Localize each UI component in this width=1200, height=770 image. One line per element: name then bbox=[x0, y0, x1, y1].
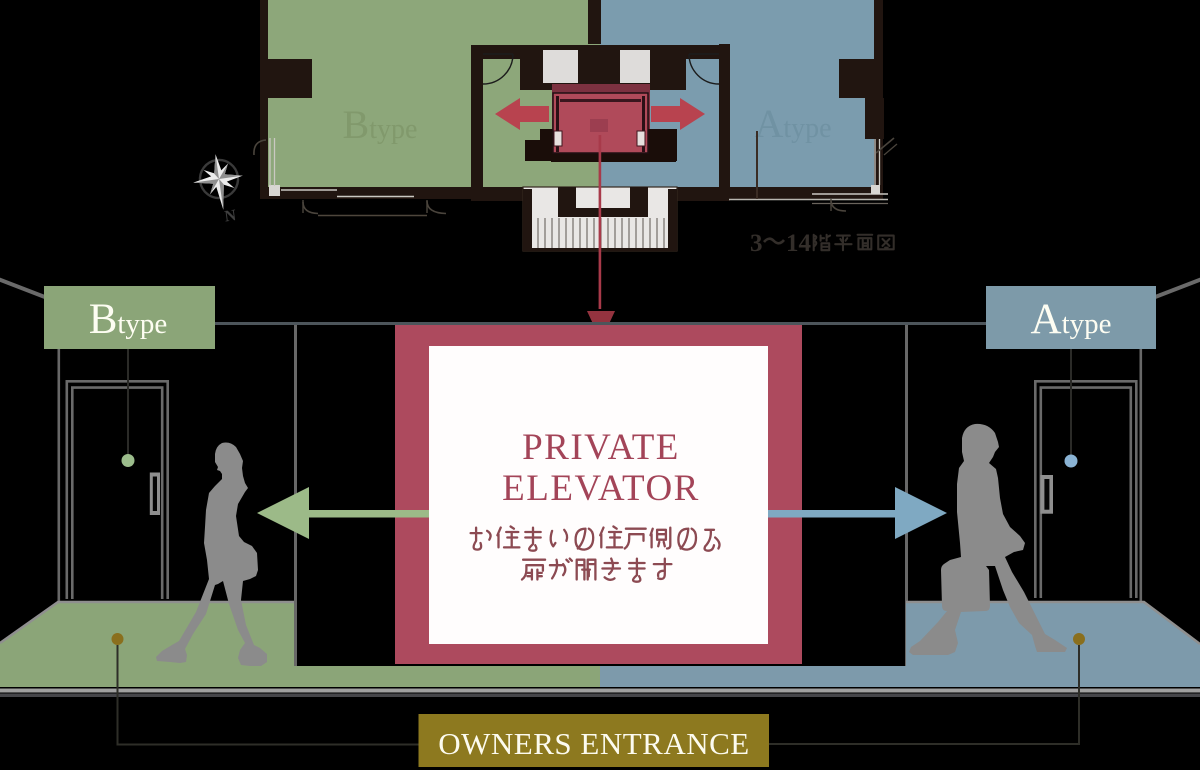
svg-text:PRIVATE: PRIVATE bbox=[522, 427, 680, 468]
svg-text:14: 14 bbox=[786, 230, 812, 257]
svg-text:3: 3 bbox=[750, 230, 763, 257]
svg-text:ELEVATOR: ELEVATOR bbox=[502, 468, 700, 509]
svg-text:OWNERS ENTRANCE: OWNERS ENTRANCE bbox=[438, 726, 749, 761]
